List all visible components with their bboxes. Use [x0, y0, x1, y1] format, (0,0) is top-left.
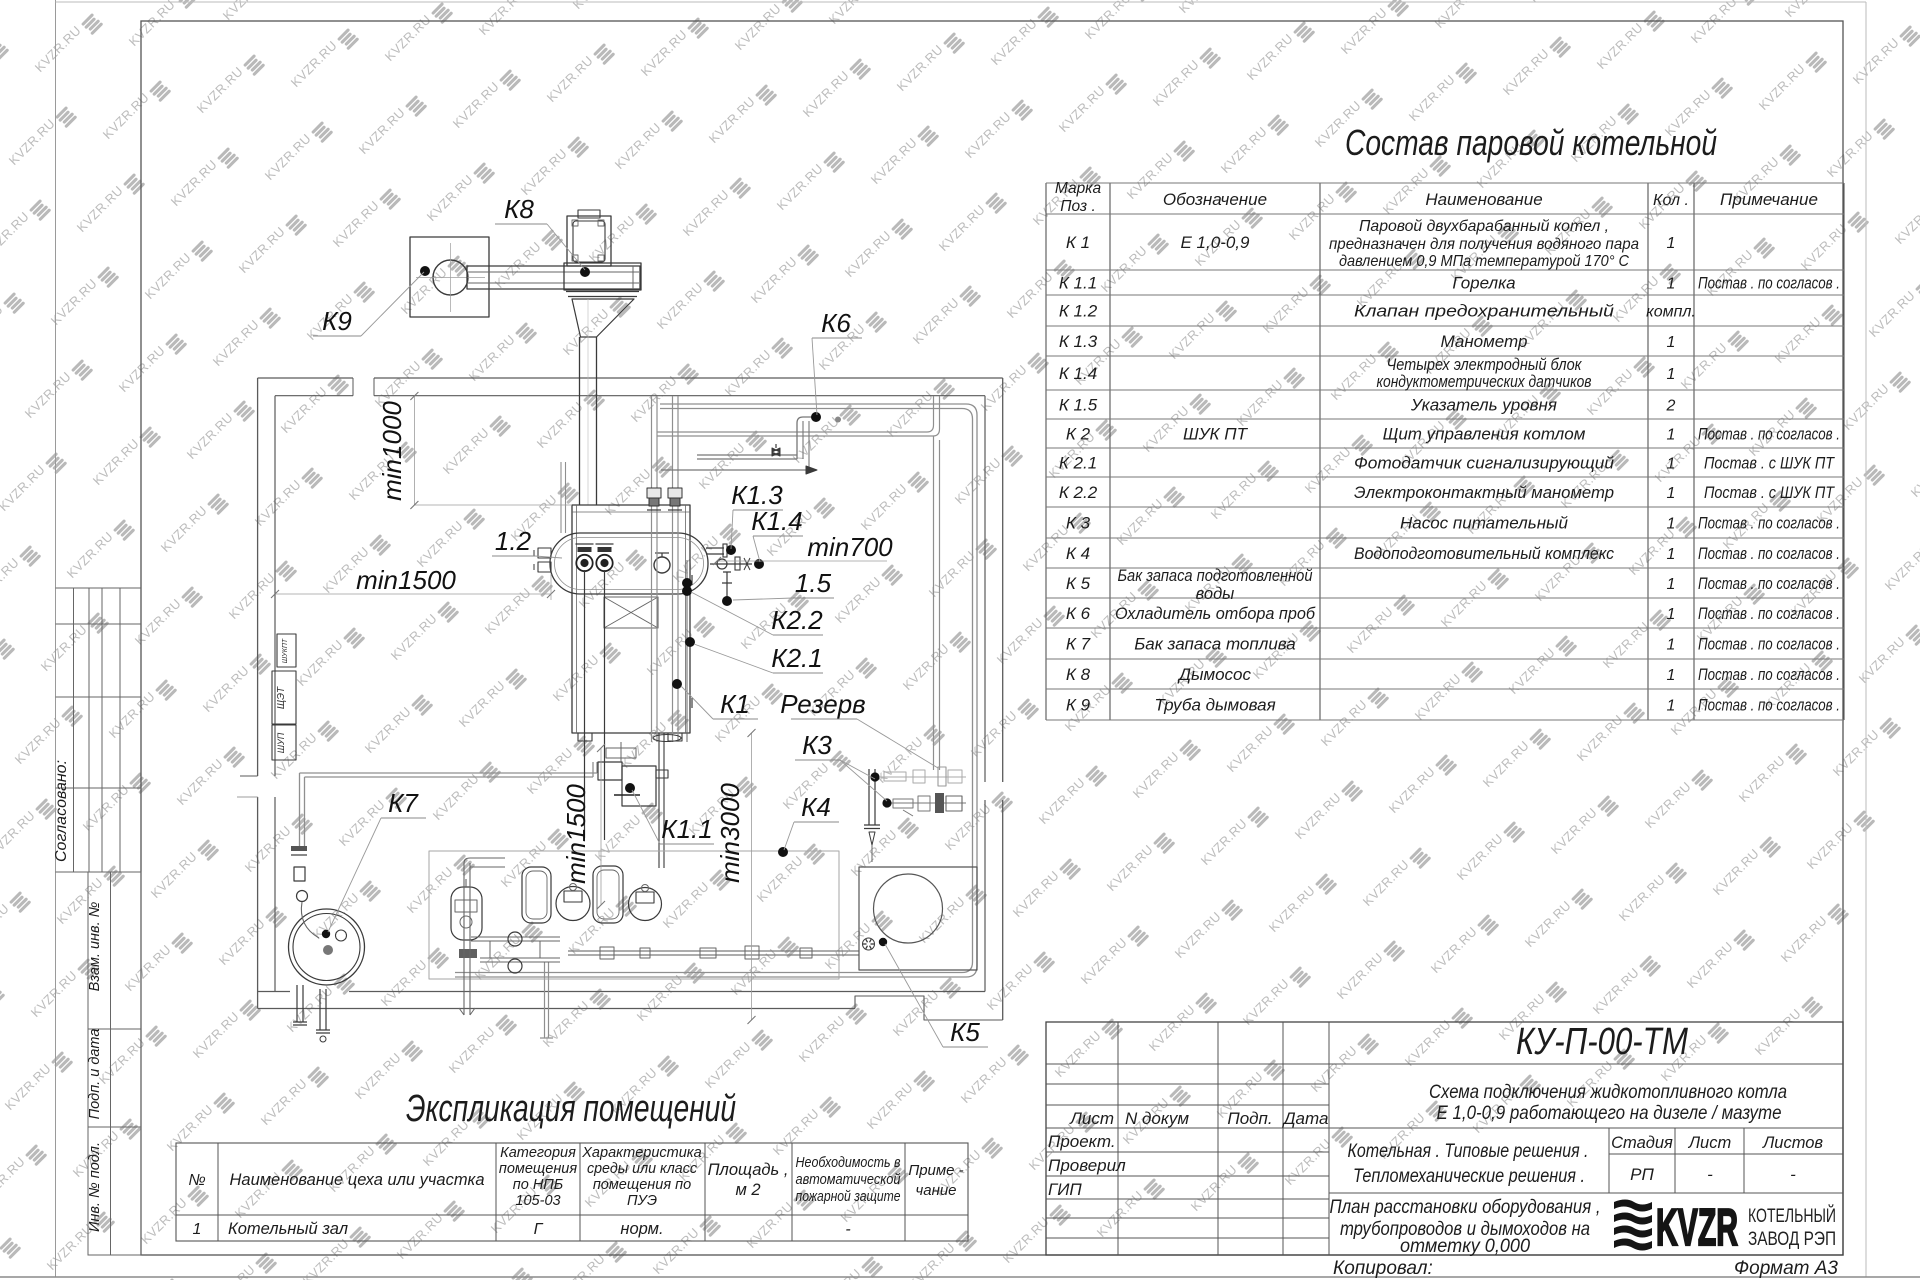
- svg-text:Проверил: Проверил: [1048, 1156, 1126, 1175]
- svg-text:Кол .: Кол .: [1653, 192, 1689, 209]
- svg-text:Постав . по согласов .: Постав . по согласов .: [1698, 545, 1840, 563]
- svg-text:К5: К5: [950, 1017, 980, 1047]
- svg-text:К 9: К 9: [1066, 696, 1091, 715]
- svg-text:Дымосос: Дымосос: [1177, 665, 1252, 684]
- svg-text:Необходимость в: Необходимость в: [796, 1155, 901, 1171]
- svg-text:Четырех электродный блок: Четырех электродный блок: [1387, 356, 1583, 374]
- svg-text:min3000: min3000: [715, 783, 745, 883]
- svg-text:Наименование цеха или участ: Наименование цеха или участка: [230, 1171, 485, 1189]
- svg-text:К7: К7: [388, 788, 419, 818]
- svg-text:КУ-П-00-ТМ: КУ-П-00-ТМ: [1516, 1021, 1688, 1063]
- svg-text:К9: К9: [322, 306, 352, 336]
- svg-text:Постав . с ШУК ПТ: Постав . с ШУК ПТ: [1704, 484, 1836, 502]
- svg-text:Постав . по согласов .: Постав . по согласов .: [1698, 575, 1840, 593]
- svg-text:Площадь ,: Площадь ,: [708, 1161, 789, 1179]
- svg-text:среды или класс: среды или класс: [587, 1161, 698, 1177]
- svg-text:Насос питательный: Насос питательный: [1400, 514, 1569, 533]
- svg-text:Обозначение: Обозначение: [1163, 190, 1267, 209]
- svg-text:1: 1: [1667, 546, 1676, 563]
- svg-text:1.2: 1.2: [495, 526, 532, 556]
- svg-text:К 1.1: К 1.1: [1059, 274, 1097, 293]
- svg-text:Наименование: Наименование: [1425, 190, 1542, 209]
- svg-text:К 1: К 1: [1066, 233, 1090, 252]
- svg-text:ШУК ПТ: ШУК ПТ: [1183, 425, 1249, 444]
- svg-text:кондуктометрических датчиков: кондуктометрических датчиков: [1377, 373, 1592, 391]
- svg-text:1.5: 1.5: [795, 568, 832, 598]
- svg-text:Поз .: Поз .: [1060, 198, 1096, 215]
- svg-text:Лист: Лист: [1069, 1109, 1114, 1128]
- svg-text:Постав . с ШУК ПТ: Постав . с ШУК ПТ: [1704, 455, 1836, 473]
- svg-text:№: №: [188, 1172, 205, 1189]
- svg-text:К 8: К 8: [1066, 665, 1091, 684]
- svg-text:К 1.3: К 1.3: [1059, 332, 1098, 351]
- svg-text:КОТЕЛЬНЫЙ: КОТЕЛЬНЫЙ: [1748, 1205, 1836, 1227]
- svg-text:К2.1: К2.1: [771, 643, 822, 673]
- svg-text:1: 1: [1667, 427, 1676, 444]
- svg-text:min1500: min1500: [356, 565, 456, 595]
- svg-text:Постав . по согласов .: Постав . по согласов .: [1698, 697, 1840, 715]
- svg-text:1: 1: [1667, 235, 1676, 252]
- svg-text:ШУКПТ: ШУКПТ: [282, 638, 289, 663]
- svg-text:Схема подключения жидкотопли: Схема подключения жидкотопливного котла: [1429, 1082, 1787, 1103]
- svg-text:К 6: К 6: [1066, 604, 1091, 623]
- svg-text:Электроконтактный манометр: Электроконтактный манометр: [1354, 483, 1614, 502]
- svg-text:пожарной защите: пожарной защите: [796, 1189, 901, 1205]
- svg-text:Бак запаса топлива: Бак запаса топлива: [1134, 635, 1296, 654]
- svg-text:2: 2: [1666, 398, 1676, 415]
- svg-text:К3: К3: [802, 730, 832, 760]
- svg-text:Манометр: Манометр: [1441, 332, 1528, 351]
- svg-text:Е 1,0-0,9 работающего на ди: Е 1,0-0,9 работающего на дизеле / мазуте: [1437, 1103, 1782, 1124]
- svg-text:Взам. инв. №: Взам. инв. №: [87, 901, 103, 991]
- svg-text:Состав паровой котельной: Состав паровой котельной: [1345, 122, 1717, 163]
- svg-text:давлением 0,9 МПа температу: давлением 0,9 МПа температурой 170° С: [1339, 253, 1629, 270]
- svg-text:Водоподготовительный комплекс: Водоподготовительный комплекс: [1354, 544, 1614, 563]
- svg-text:План расстановки оборудовани: План расстановки оборудования ,: [1330, 1197, 1601, 1218]
- svg-text:отметку 0,000: отметку 0,000: [1400, 1236, 1530, 1257]
- svg-text:Согласовано:: Согласовано:: [53, 760, 70, 862]
- svg-text:1: 1: [1667, 485, 1676, 502]
- svg-text:Проект.: Проект.: [1048, 1132, 1116, 1151]
- svg-text:Экспликация помещений: Экспликация помещений: [406, 1088, 736, 1130]
- svg-text:Листов: Листов: [1762, 1134, 1823, 1152]
- svg-text:К 2: К 2: [1066, 425, 1091, 444]
- svg-text:Клапан предохранительный: Клапан предохранительный: [1354, 302, 1615, 321]
- svg-text:Е 1,0-0,9: Е 1,0-0,9: [1181, 233, 1251, 252]
- svg-text:Щит управления котлом: Щит управления котлом: [1383, 425, 1586, 444]
- svg-text:чание: чание: [915, 1182, 956, 1199]
- svg-text:1: 1: [1667, 698, 1676, 715]
- svg-text:-: -: [845, 1221, 850, 1238]
- svg-text:Дата: Дата: [1282, 1109, 1329, 1128]
- svg-text:К1: К1: [720, 689, 750, 719]
- svg-text:по НПБ: по НПБ: [513, 1177, 564, 1193]
- svg-text:К 2.1: К 2.1: [1059, 454, 1097, 473]
- svg-text:1: 1: [1667, 667, 1676, 684]
- svg-text:К2.2: К2.2: [771, 605, 823, 635]
- svg-text:К 2.2: К 2.2: [1059, 483, 1098, 502]
- svg-text:компл.: компл.: [1646, 304, 1696, 321]
- svg-text:К8: К8: [504, 194, 534, 224]
- svg-text:Постав . по согласов .: Постав . по согласов .: [1698, 275, 1840, 293]
- svg-text:Труба дымовая: Труба дымовая: [1154, 696, 1275, 715]
- svg-text:Бак запаса подготовленной: Бак запаса подготовленной: [1118, 567, 1313, 585]
- svg-text:ПУЭ: ПУЭ: [627, 1193, 657, 1209]
- svg-text:Постав . по согласов .: Постав . по согласов .: [1698, 636, 1840, 654]
- svg-text:Формат А3: Формат А3: [1734, 1258, 1838, 1279]
- svg-text:Тепломеханические решения .: Тепломеханические решения .: [1353, 1166, 1585, 1187]
- svg-text:1: 1: [1667, 334, 1676, 351]
- svg-text:К6: К6: [821, 308, 851, 338]
- svg-text:норм.: норм.: [620, 1220, 663, 1238]
- svg-text:Подп.: Подп.: [1227, 1109, 1272, 1128]
- svg-text:-: -: [1790, 1165, 1796, 1184]
- svg-text:KVZR: KVZR: [1656, 1199, 1738, 1257]
- svg-text:Горелка: Горелка: [1452, 274, 1515, 293]
- svg-text:Указатель уровня: Указатель уровня: [1410, 396, 1557, 415]
- svg-text:Лист: Лист: [1688, 1134, 1731, 1152]
- svg-text:Постав . по согласов .: Постав . по согласов .: [1698, 426, 1840, 444]
- svg-text:min1000: min1000: [377, 401, 407, 501]
- svg-text:Котельный зал: Котельный зал: [228, 1220, 348, 1238]
- svg-text:1: 1: [1667, 516, 1676, 533]
- svg-text:Резерв: Резерв: [780, 689, 866, 719]
- svg-text:м 2: м 2: [735, 1181, 760, 1199]
- svg-text:К1.4: К1.4: [751, 506, 802, 536]
- svg-text:Приме -: Приме -: [908, 1162, 963, 1179]
- svg-text:Стадия: Стадия: [1611, 1134, 1673, 1152]
- svg-text:105-03: 105-03: [515, 1193, 560, 1209]
- svg-text:К 5: К 5: [1066, 574, 1091, 593]
- svg-text:Инв. № подл.: Инв. № подл.: [87, 1142, 103, 1232]
- svg-text:1: 1: [1667, 276, 1676, 293]
- svg-text:К 4: К 4: [1066, 544, 1090, 563]
- svg-text:К 1.5: К 1.5: [1059, 396, 1098, 415]
- svg-text:-: -: [1707, 1165, 1713, 1184]
- svg-text:1: 1: [1667, 456, 1676, 473]
- svg-text:К4: К4: [801, 792, 831, 822]
- svg-text:предназначен для получения: предназначен для получения водяного пара: [1329, 236, 1639, 253]
- svg-text:ШУП: ШУП: [276, 732, 286, 753]
- svg-text:К 3: К 3: [1066, 514, 1091, 533]
- svg-text:Котельная . Типовые решения .: Котельная . Типовые решения .: [1348, 1141, 1589, 1162]
- svg-text:К 7: К 7: [1066, 635, 1091, 654]
- svg-text:автоматической: автоматической: [796, 1172, 901, 1188]
- svg-text:Охладитель отбора проб: Охладитель отбора проб: [1115, 604, 1316, 623]
- svg-text:Характеристика: Характеристика: [581, 1145, 701, 1161]
- svg-text:Постав . по согласов .: Постав . по согласов .: [1698, 666, 1840, 684]
- svg-text:1: 1: [1667, 637, 1676, 654]
- svg-text:ГИП: ГИП: [1048, 1180, 1082, 1199]
- svg-text:Постав . по согласов .: Постав . по согласов .: [1698, 515, 1840, 533]
- svg-text:1: 1: [193, 1221, 202, 1238]
- svg-text:N докум: N докум: [1125, 1109, 1189, 1128]
- svg-text:min1500: min1500: [561, 784, 591, 884]
- svg-text:РП: РП: [1630, 1165, 1654, 1184]
- svg-text:1: 1: [1667, 576, 1676, 593]
- svg-text:Фотодатчик сигнализирующий: Фотодатчик сигнализирующий: [1354, 454, 1615, 473]
- svg-text:К 1.4: К 1.4: [1059, 364, 1097, 383]
- svg-text:Копировал:: Копировал:: [1333, 1258, 1433, 1279]
- svg-text:помещения по: помещения по: [593, 1177, 691, 1193]
- svg-text:Г: Г: [534, 1221, 544, 1238]
- svg-text:Подп. и дата: Подп. и дата: [87, 1029, 103, 1120]
- svg-text:Паровой двухбарабанный котел: Паровой двухбарабанный котел ,: [1359, 218, 1609, 235]
- svg-text:К1.1: К1.1: [661, 814, 712, 844]
- svg-text:ЗАВОД РЭП: ЗАВОД РЭП: [1748, 1229, 1836, 1250]
- svg-text:Постав . по согласов .: Постав . по согласов .: [1698, 605, 1840, 623]
- svg-text:Марка: Марка: [1055, 180, 1102, 197]
- svg-text:Примечание: Примечание: [1720, 190, 1818, 209]
- svg-text:1: 1: [1667, 366, 1676, 383]
- svg-text:помещения: помещения: [499, 1161, 577, 1177]
- svg-text:воды: воды: [1196, 585, 1235, 603]
- svg-text:Категория: Категория: [500, 1145, 576, 1161]
- svg-text:min700: min700: [807, 532, 893, 562]
- svg-text:ЩЭТ: ЩЭТ: [276, 686, 287, 709]
- svg-text:К 1.2: К 1.2: [1059, 302, 1098, 321]
- svg-text:1: 1: [1667, 606, 1676, 623]
